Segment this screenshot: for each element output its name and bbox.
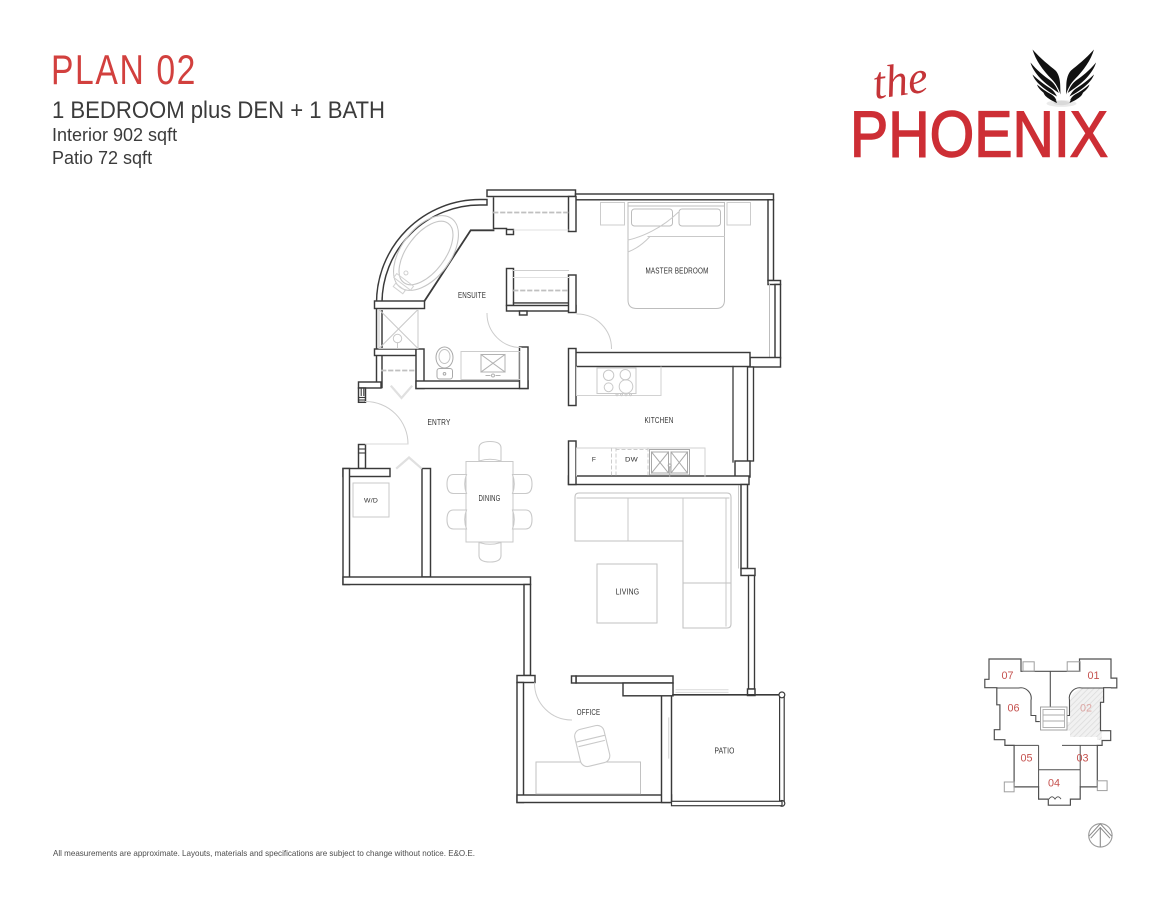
svg-text:05: 05: [1020, 753, 1032, 765]
svg-text:02: 02: [1080, 703, 1092, 715]
svg-text:07: 07: [1001, 670, 1013, 682]
svg-text:DINING: DINING: [479, 494, 501, 503]
svg-text:DW: DW: [625, 457, 639, 464]
svg-text:Patio 72 sqft: Patio 72 sqft: [52, 148, 152, 168]
svg-text:PLAN 02: PLAN 02: [51, 46, 197, 93]
svg-text:All measurements are approxima: All measurements are approximate. Layout…: [53, 848, 475, 858]
svg-text:LIVING: LIVING: [616, 587, 640, 596]
svg-text:04: 04: [1048, 778, 1060, 790]
svg-text:03: 03: [1076, 753, 1088, 765]
svg-text:PATIO: PATIO: [715, 746, 735, 755]
svg-text:ENSUITE: ENSUITE: [458, 291, 486, 300]
svg-text:MASTER BEDROOM: MASTER BEDROOM: [646, 266, 709, 275]
svg-text:Interior 902 sqft: Interior 902 sqft: [52, 125, 177, 145]
svg-text:01: 01: [1087, 670, 1099, 682]
svg-text:PHOENIX: PHOENIX: [850, 98, 1108, 171]
svg-text:OFFICE: OFFICE: [577, 708, 601, 717]
svg-text:1 BEDROOM plus DEN + 1 BATH: 1 BEDROOM plus DEN + 1 BATH: [52, 97, 385, 124]
svg-text:W/D: W/D: [364, 497, 378, 504]
svg-text:06: 06: [1007, 703, 1019, 715]
svg-text:KITCHEN: KITCHEN: [645, 416, 674, 425]
svg-text:F: F: [592, 457, 596, 464]
svg-text:ENTRY: ENTRY: [428, 418, 451, 427]
